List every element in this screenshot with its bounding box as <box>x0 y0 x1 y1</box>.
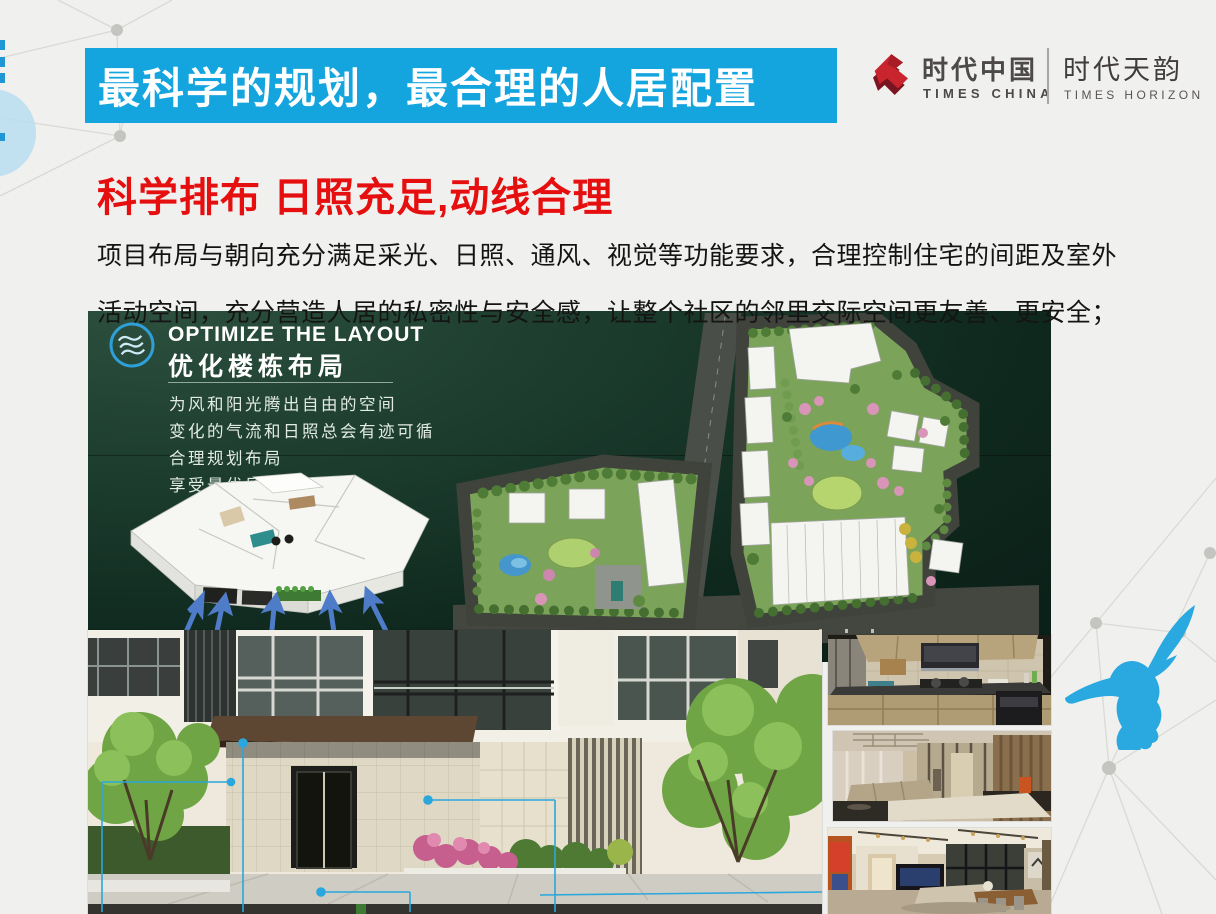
site-master-plan <box>453 313 1043 643</box>
body-paragraph: 项目布局与朝向充分满足采光、日照、通风、视觉等功能要求，合理控制住宅的间距及室外… <box>97 228 1057 342</box>
living-room-photo-2 <box>828 828 1051 914</box>
edge-mark-decor <box>0 40 5 50</box>
section-heading: 科学排布 日照充足,动线合理 <box>97 165 613 223</box>
slide-title-banner: 最科学的规划，最合理的人居配置 <box>85 48 837 123</box>
brand-logos: 时代中国 TIMES CHINA 时代天韵 TIMES HORIZON <box>866 44 1216 116</box>
project-name-en: TIMES HORIZON <box>1064 88 1204 102</box>
slide-title: 最科学的规划，最合理的人居配置 <box>85 55 758 116</box>
logo-divider <box>1047 48 1049 104</box>
floorplan-3d-model <box>103 439 461 644</box>
blue-circle-decor <box>0 89 36 177</box>
feature-image-panel: OPTIMIZE THE LAYOUT 优化楼栋布局 为风和阳光腾出自由的空间 … <box>88 311 1051 662</box>
feature-line: 为风和阳光腾出自由的空间 <box>169 391 397 415</box>
project-name-cn: 时代天韵 <box>1063 48 1183 87</box>
edge-mark-decor <box>0 73 5 83</box>
feature-divider <box>168 382 393 383</box>
company-name-en: TIMES CHINA <box>923 86 1054 101</box>
living-room-photo-1 <box>833 731 1051 821</box>
kitchen-photo <box>828 635 1051 725</box>
company-name-cn: 时代中国 <box>922 50 1038 87</box>
times-china-logo-icon <box>868 46 918 104</box>
feature-title-cn: 优化楼栋布局 <box>168 347 348 383</box>
edge-mark-decor <box>0 57 5 67</box>
hummingbird-logo <box>1058 598 1198 750</box>
body-line-1: 项目布局与朝向充分满足采光、日照、通风、视觉等功能要求，合理控制住宅的间距及室外 <box>97 228 1057 285</box>
body-line-2: 活动空间，充分营造人居的私密性与安全感，让整个社区的邻里交际空间更友善、更安全； <box>97 285 1057 342</box>
edge-mark-decor <box>0 133 5 141</box>
building-entrance-photo <box>88 630 822 914</box>
